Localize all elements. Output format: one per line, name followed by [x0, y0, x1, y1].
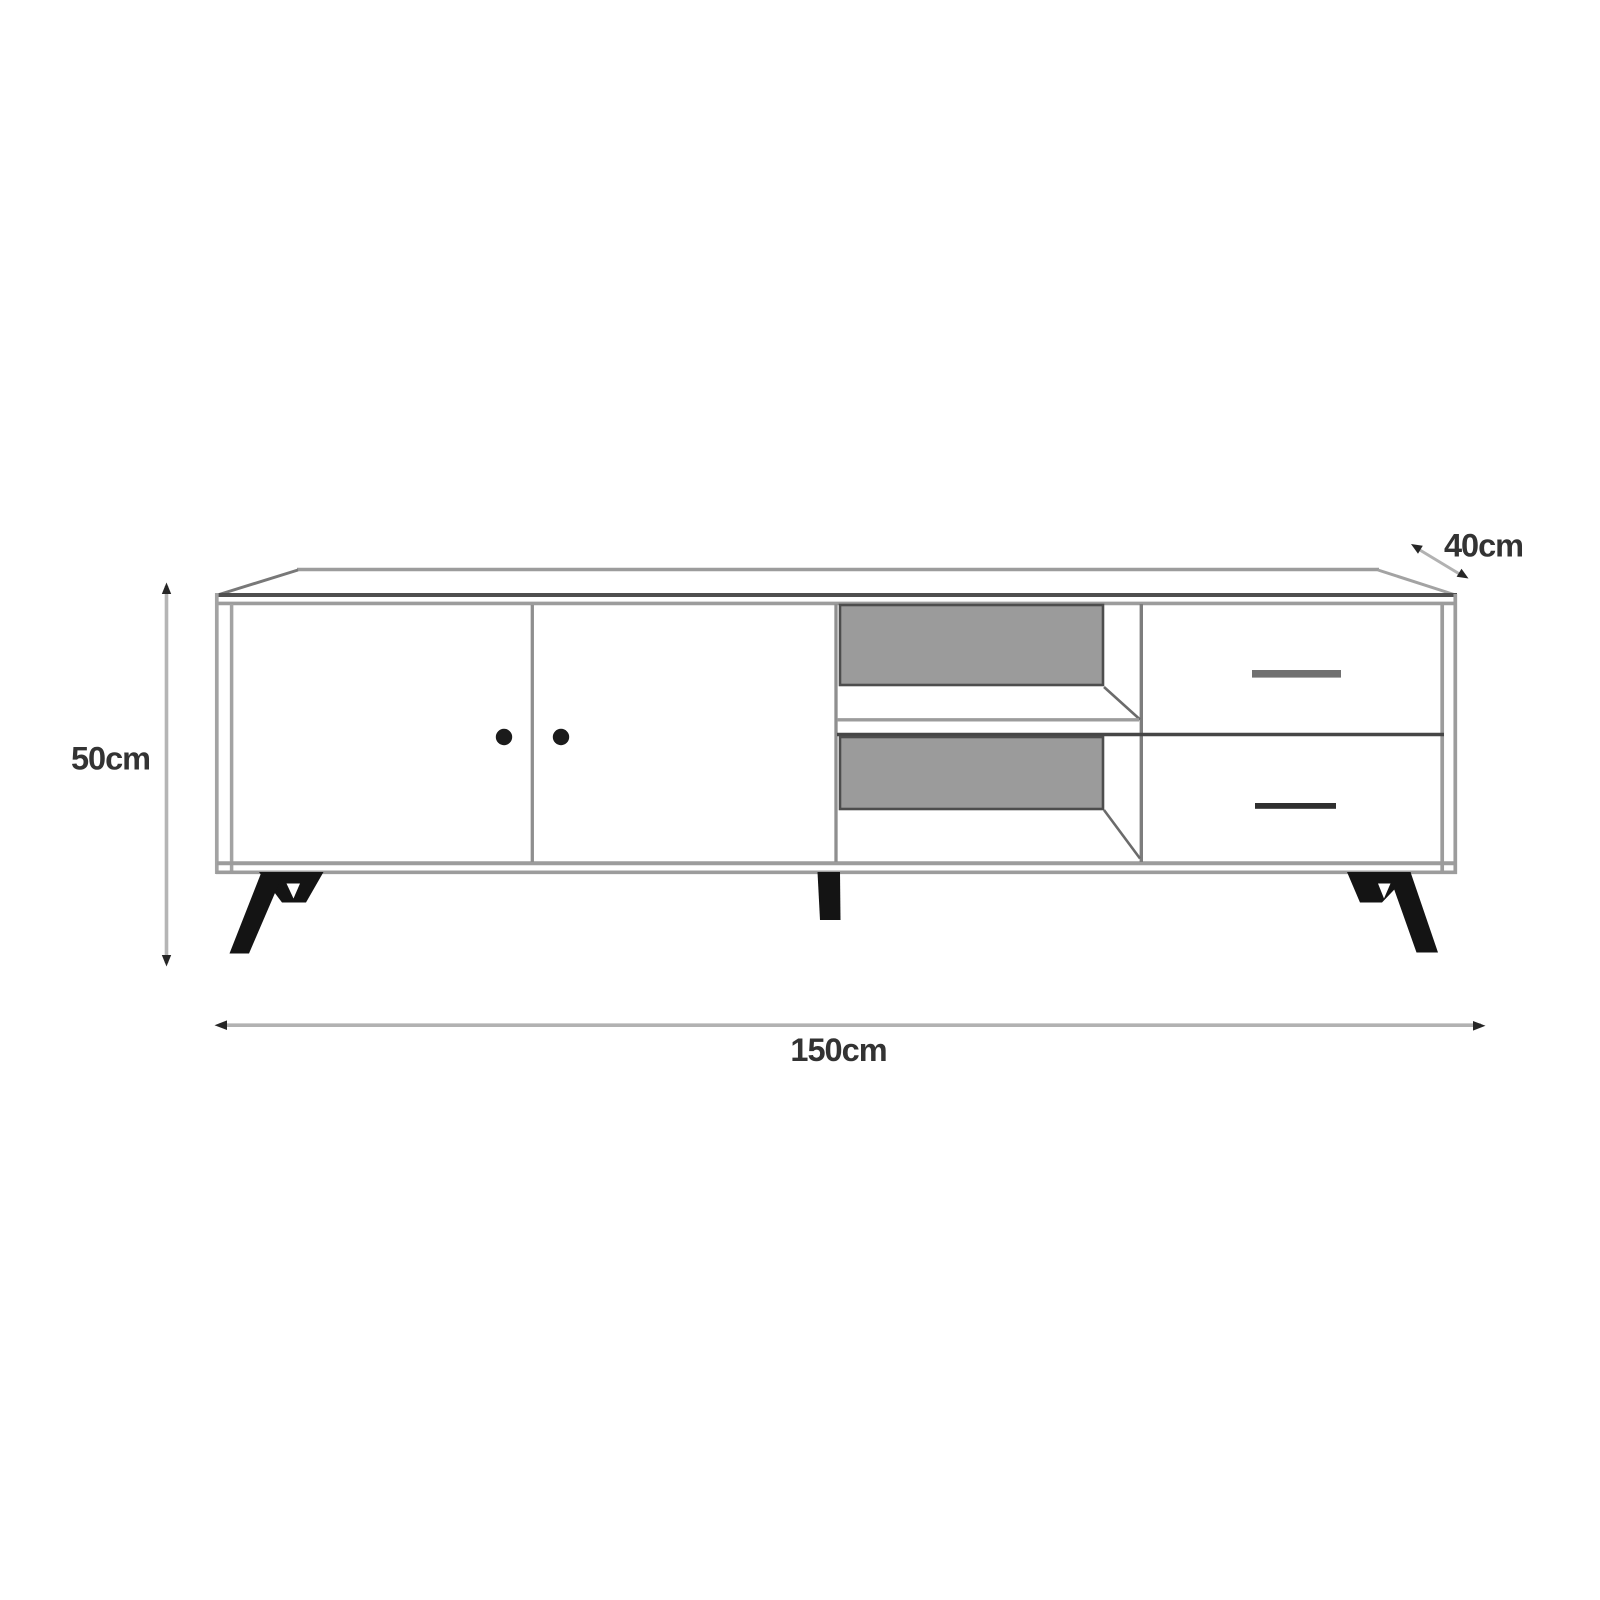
svg-text:150cm: 150cm — [790, 1032, 886, 1068]
svg-text:50cm: 50cm — [71, 741, 150, 777]
svg-text:40cm: 40cm — [1444, 528, 1523, 564]
